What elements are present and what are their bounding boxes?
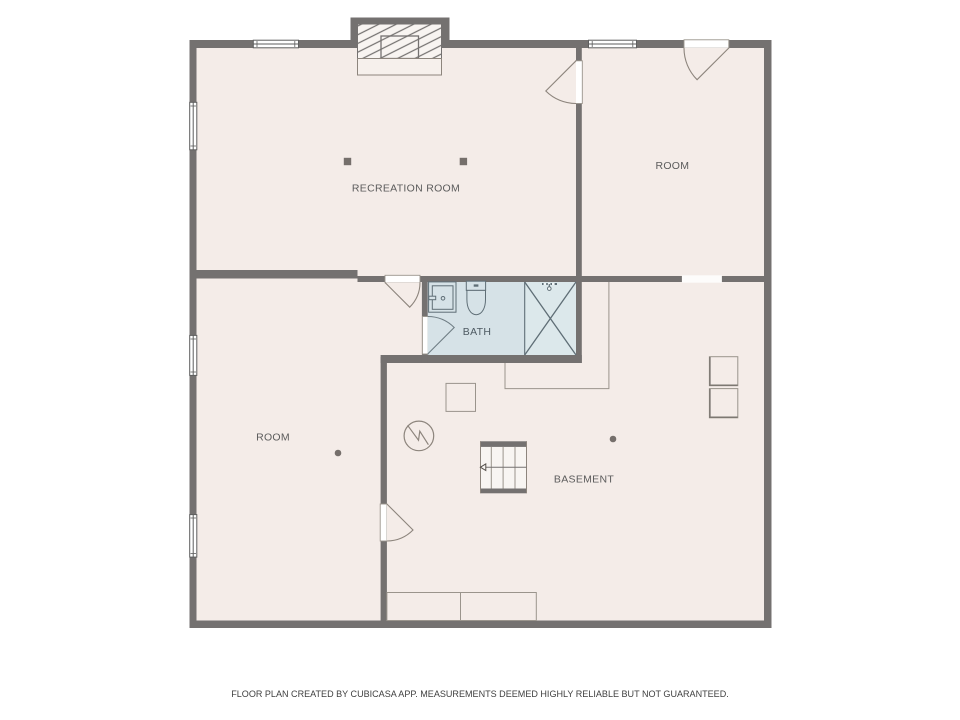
svg-text:BATH: BATH bbox=[463, 326, 491, 338]
svg-text:FLOOR PLAN CREATED BY CUBICASA: FLOOR PLAN CREATED BY CUBICASA APP. MEAS… bbox=[231, 689, 729, 699]
svg-text:BASEMENT: BASEMENT bbox=[554, 473, 614, 485]
svg-text:RECREATION ROOM: RECREATION ROOM bbox=[352, 183, 460, 195]
svg-text:ROOM: ROOM bbox=[655, 160, 689, 172]
svg-text:ROOM: ROOM bbox=[256, 431, 290, 443]
